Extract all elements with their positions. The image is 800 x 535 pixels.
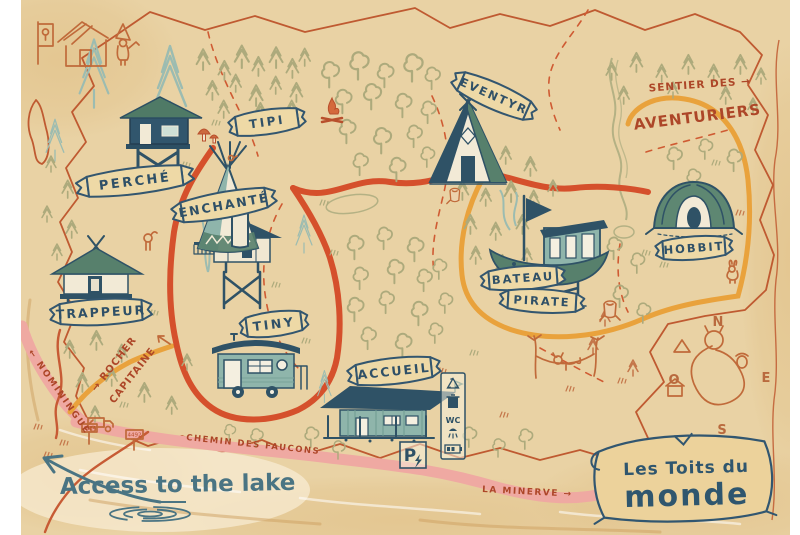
compass-east: E (762, 371, 771, 386)
map-canvas: 4984 4492 (0, 0, 800, 535)
illustrated-campground-map: 4984 4492 (0, 0, 800, 535)
lake-access-label: Access to the lake (60, 470, 296, 500)
compass-west: O (668, 373, 679, 388)
title-banner: Les Toits du monde (591, 431, 777, 524)
wc-label: WC (446, 416, 461, 425)
facilities-box: WC (441, 373, 465, 459)
compass-north: N (713, 315, 724, 330)
sign-number-2: 4492 (128, 433, 142, 439)
banner-pirate-label: PIRATE (513, 293, 571, 310)
title-line2: monde (624, 477, 750, 515)
parking-label: P (404, 446, 416, 466)
parking-box: P (400, 442, 426, 468)
page-margin-left (0, 0, 21, 535)
page-margin-right (790, 0, 800, 535)
trash-icon (447, 395, 460, 408)
